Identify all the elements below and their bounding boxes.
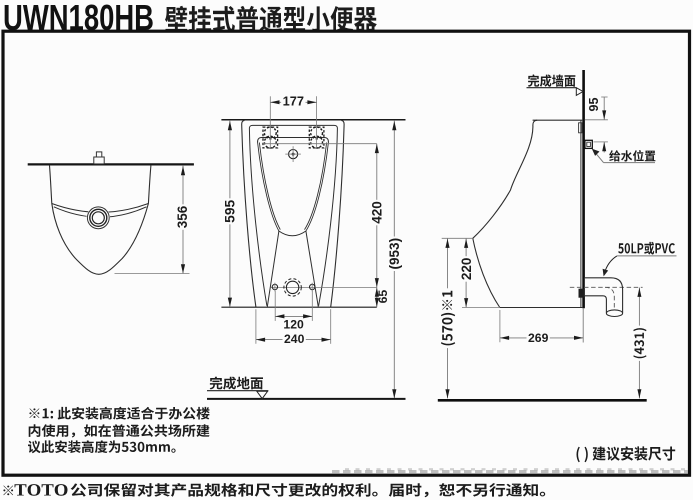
svg-text:120: 120 [283,318,304,332]
svg-text:356: 356 [175,205,190,228]
svg-text:240: 240 [284,332,305,346]
svg-text:420: 420 [369,201,384,224]
svg-text:177: 177 [283,93,304,108]
svg-text:65: 65 [376,290,390,304]
svg-text:595: 595 [223,199,238,222]
svg-text:(953): (953) [387,238,402,270]
svg-text:220: 220 [459,258,474,281]
svg-text:269: 269 [528,331,549,345]
svg-text:95: 95 [587,98,601,112]
